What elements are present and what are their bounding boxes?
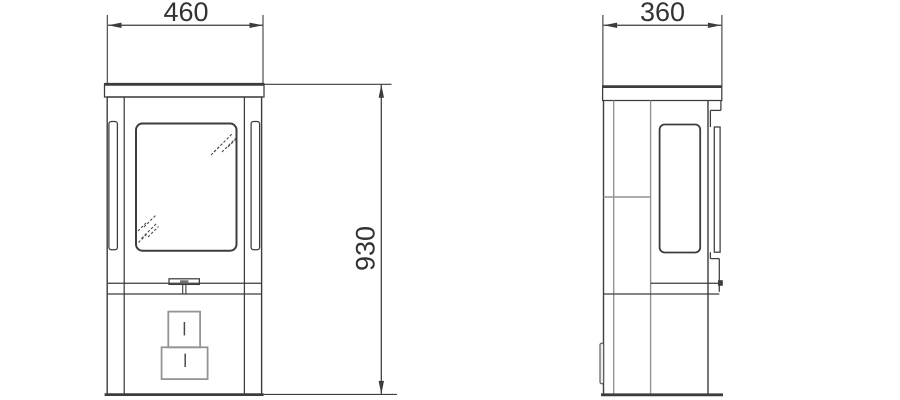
- door-handle-rail: [714, 127, 720, 252]
- back-hinge-detail: [600, 343, 604, 384]
- front-door-window: [136, 124, 237, 251]
- door-handle-grip: [180, 280, 188, 283]
- front-view: 460: [104, 0, 397, 395]
- depth-dimension: 360: [603, 0, 722, 86]
- dimension-arrowhead: [108, 23, 122, 28]
- front-left-panel-window: [109, 122, 118, 250]
- dimension-arrowhead: [379, 85, 384, 98]
- dimension-arrowhead: [379, 381, 384, 394]
- front-right-panel-window: [251, 122, 260, 250]
- side-view: 360: [600, 0, 723, 395]
- width-dimension: 460: [107, 0, 263, 83]
- glass-reflection-hatch-lower: [138, 216, 159, 243]
- dimension-arrowhead: [708, 23, 722, 28]
- depth-dimension-label: 360: [640, 0, 685, 27]
- front-top-plate: [105, 84, 265, 97]
- dimension-arrowhead: [604, 23, 618, 28]
- drawing-canvas: 460: [0, 0, 900, 400]
- front-body-outline: [107, 97, 261, 394]
- height-dimension-label: 930: [351, 226, 381, 271]
- width-dimension-label: 460: [163, 0, 208, 27]
- stove-dimension-drawing: 460: [0, 0, 900, 400]
- glass-reflection-hatch-upper: [211, 134, 237, 155]
- height-dimension: 930: [264, 84, 397, 394]
- base-pedestal: [162, 312, 208, 379]
- door-handle: [169, 279, 199, 294]
- dimension-arrowhead: [250, 23, 264, 28]
- side-door-window: [660, 125, 701, 253]
- side-top-plate: [603, 86, 722, 100]
- side-front-contour: [710, 101, 722, 292]
